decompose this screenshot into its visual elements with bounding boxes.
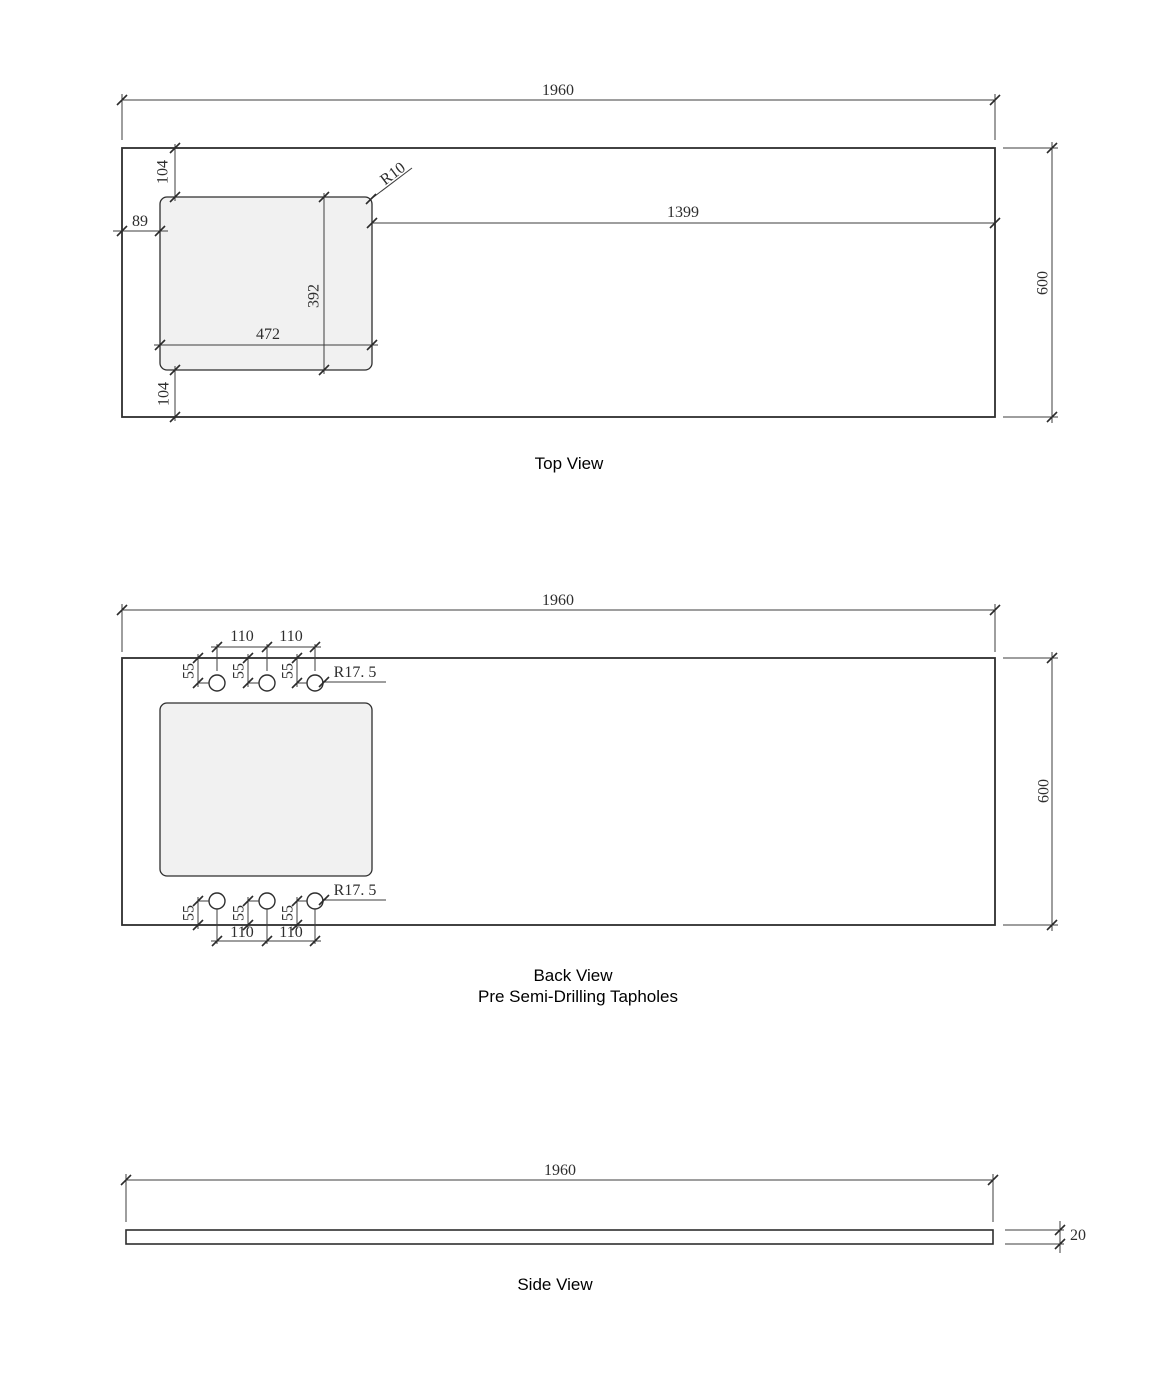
dim-cutout-offset-bottom: 104 xyxy=(156,382,173,406)
dim-hole-spacing-bottom-2: 110 xyxy=(279,924,302,941)
dim-cutout-offset-left: 89 xyxy=(132,213,148,230)
dim-overall-width: 1960 xyxy=(542,82,574,99)
dim-taphole-radius-top: R17. 5 xyxy=(334,664,377,681)
top-view: 1960 104 89 1399 R10 392 472 1 xyxy=(113,82,1058,473)
dim-hole-offset-bottom-2: 55 xyxy=(231,905,248,921)
sink-cutout xyxy=(160,197,372,370)
dim-hole-spacing-top-2: 110 xyxy=(279,628,302,645)
dim-hole-offset-top-3: 55 xyxy=(280,663,297,679)
back-view: 1960 110 110 55 55 55 R17. 5 xyxy=(117,592,1058,1006)
dim-hole-spacing-top-1: 110 xyxy=(230,628,253,645)
back-view-label: Back View xyxy=(533,966,613,985)
side-view: 1960 20 Side View xyxy=(121,1162,1086,1294)
taphole-top-3 xyxy=(307,675,323,691)
dim-hole-spacing-bottom-1: 110 xyxy=(230,924,253,941)
top-view-label: Top View xyxy=(535,454,604,473)
dim-cutout-corner-radius: R10 xyxy=(377,159,409,189)
taphole-bottom-3 xyxy=(307,893,323,909)
taphole-top-2 xyxy=(259,675,275,691)
taphole-bottom-2 xyxy=(259,893,275,909)
dim-overall-width-back: 1960 xyxy=(542,592,574,609)
dim-hole-offset-top-1: 55 xyxy=(181,663,198,679)
dim-cutout-offset-top: 104 xyxy=(155,160,172,184)
taphole-bottom-1 xyxy=(209,893,225,909)
technical-drawing: 1960 104 89 1399 R10 392 472 1 xyxy=(0,0,1171,1400)
back-view-sublabel: Pre Semi-Drilling Tapholes xyxy=(478,987,678,1006)
dim-cutout-width: 472 xyxy=(256,326,280,343)
dim-hole-offset-bottom-3: 55 xyxy=(280,905,297,921)
taphole-top-1 xyxy=(209,675,225,691)
dim-hole-offset-top-2: 55 xyxy=(231,663,248,679)
dim-taphole-radius-bottom: R17. 5 xyxy=(334,882,377,899)
side-view-label: Side View xyxy=(517,1275,593,1294)
dim-overall-depth-back: 600 xyxy=(1036,779,1053,803)
sink-cutout-back xyxy=(160,703,372,876)
dim-overall-width-side: 1960 xyxy=(544,1162,576,1179)
dim-cutout-to-right-edge: 1399 xyxy=(667,204,699,221)
dim-thickness: 20 xyxy=(1070,1227,1086,1244)
countertop-profile xyxy=(126,1230,993,1244)
drawing-canvas: 1960 104 89 1399 R10 392 472 1 xyxy=(0,0,1171,1400)
dim-hole-offset-bottom-1: 55 xyxy=(181,905,198,921)
dim-cutout-depth: 392 xyxy=(306,284,323,308)
dim-overall-depth: 600 xyxy=(1035,271,1052,295)
